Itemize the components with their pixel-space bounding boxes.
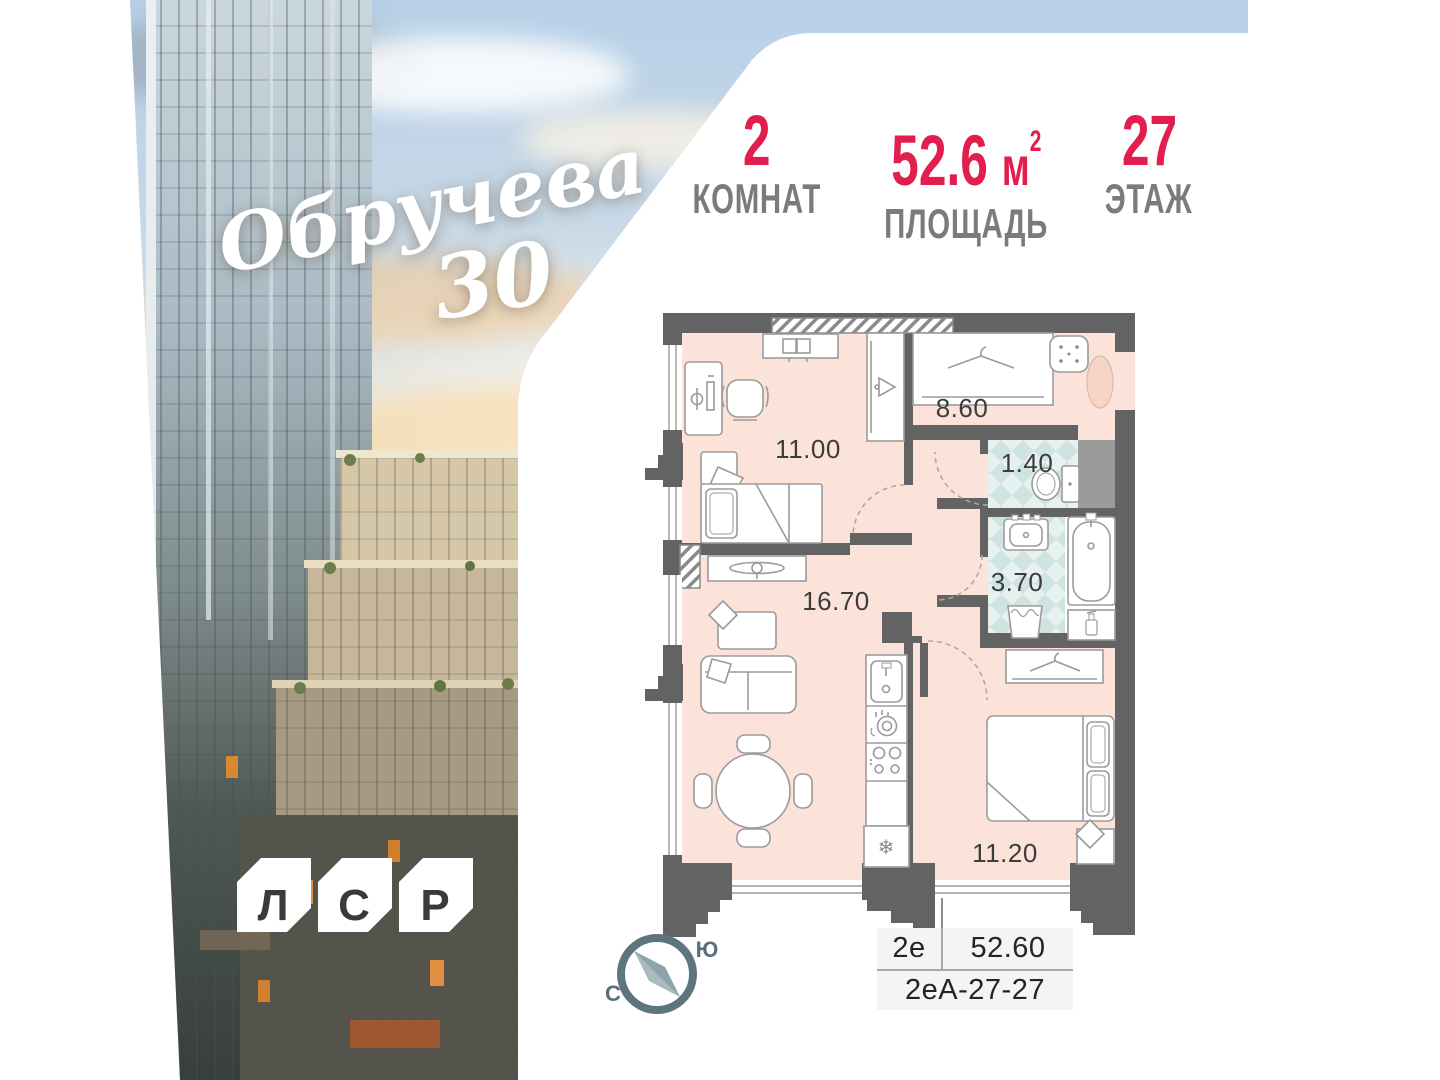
rooms-value: 2 — [743, 110, 771, 174]
apartment-code: 2еА-27-27 — [877, 971, 1073, 1010]
label-living-kitchen: 16.70 — [802, 586, 870, 616]
compass: Ю С — [605, 937, 718, 1011]
window-left-2 — [663, 487, 682, 540]
compass-south-label: Ю — [696, 937, 719, 962]
layout-type: 2е — [877, 928, 943, 969]
bath-shelf — [1068, 610, 1115, 640]
vent-duct — [1078, 440, 1115, 508]
wardrobe-bedroom-2 — [1006, 650, 1103, 683]
window-left-3 — [663, 575, 682, 645]
label-bedroom-2: 11.20 — [972, 838, 1038, 868]
svg-text:❄: ❄ — [878, 835, 895, 859]
shelf — [763, 334, 838, 362]
area-value: 52.6 — [891, 122, 988, 201]
label-wc: 1.40 — [1001, 448, 1054, 478]
window-left-4 — [663, 703, 682, 855]
compass-north-label: С — [605, 981, 621, 1006]
sofa — [701, 656, 796, 713]
rooms-label: КОМНАТ — [693, 179, 821, 219]
double-bed — [987, 716, 1114, 821]
apartment-info-table: 2е 52.60 2еА-27-27 — [877, 928, 1073, 1010]
bathtub — [1068, 513, 1115, 605]
bath-sink — [1004, 514, 1048, 550]
window-left-1 — [663, 345, 682, 430]
label-bedroom-1: 11.00 — [775, 434, 841, 464]
kitchen-units: ❄ — [864, 655, 909, 867]
hall-mirror — [1087, 356, 1113, 408]
shoe-cabinet — [1050, 336, 1088, 372]
window-bottom-1 — [732, 880, 862, 900]
tv-stand — [708, 556, 806, 581]
floor-label: ЭТАЖ — [1105, 179, 1193, 219]
wardrobe-bedroom-1 — [867, 333, 904, 441]
single-bed — [701, 484, 822, 543]
compass-needle-short-dark — [634, 951, 680, 997]
desk — [685, 362, 722, 435]
plan-table-connector — [941, 898, 943, 928]
stat-floor: 27 ЭТАЖ — [989, 110, 1309, 219]
layout-area: 52.60 — [943, 928, 1073, 969]
laundry-basket — [1008, 606, 1042, 638]
label-bathroom: 3.70 — [991, 567, 1044, 597]
window-bottom-2 — [935, 880, 1070, 900]
floor-value: 27 — [1121, 110, 1176, 174]
label-hallway: 8.60 — [936, 393, 989, 423]
